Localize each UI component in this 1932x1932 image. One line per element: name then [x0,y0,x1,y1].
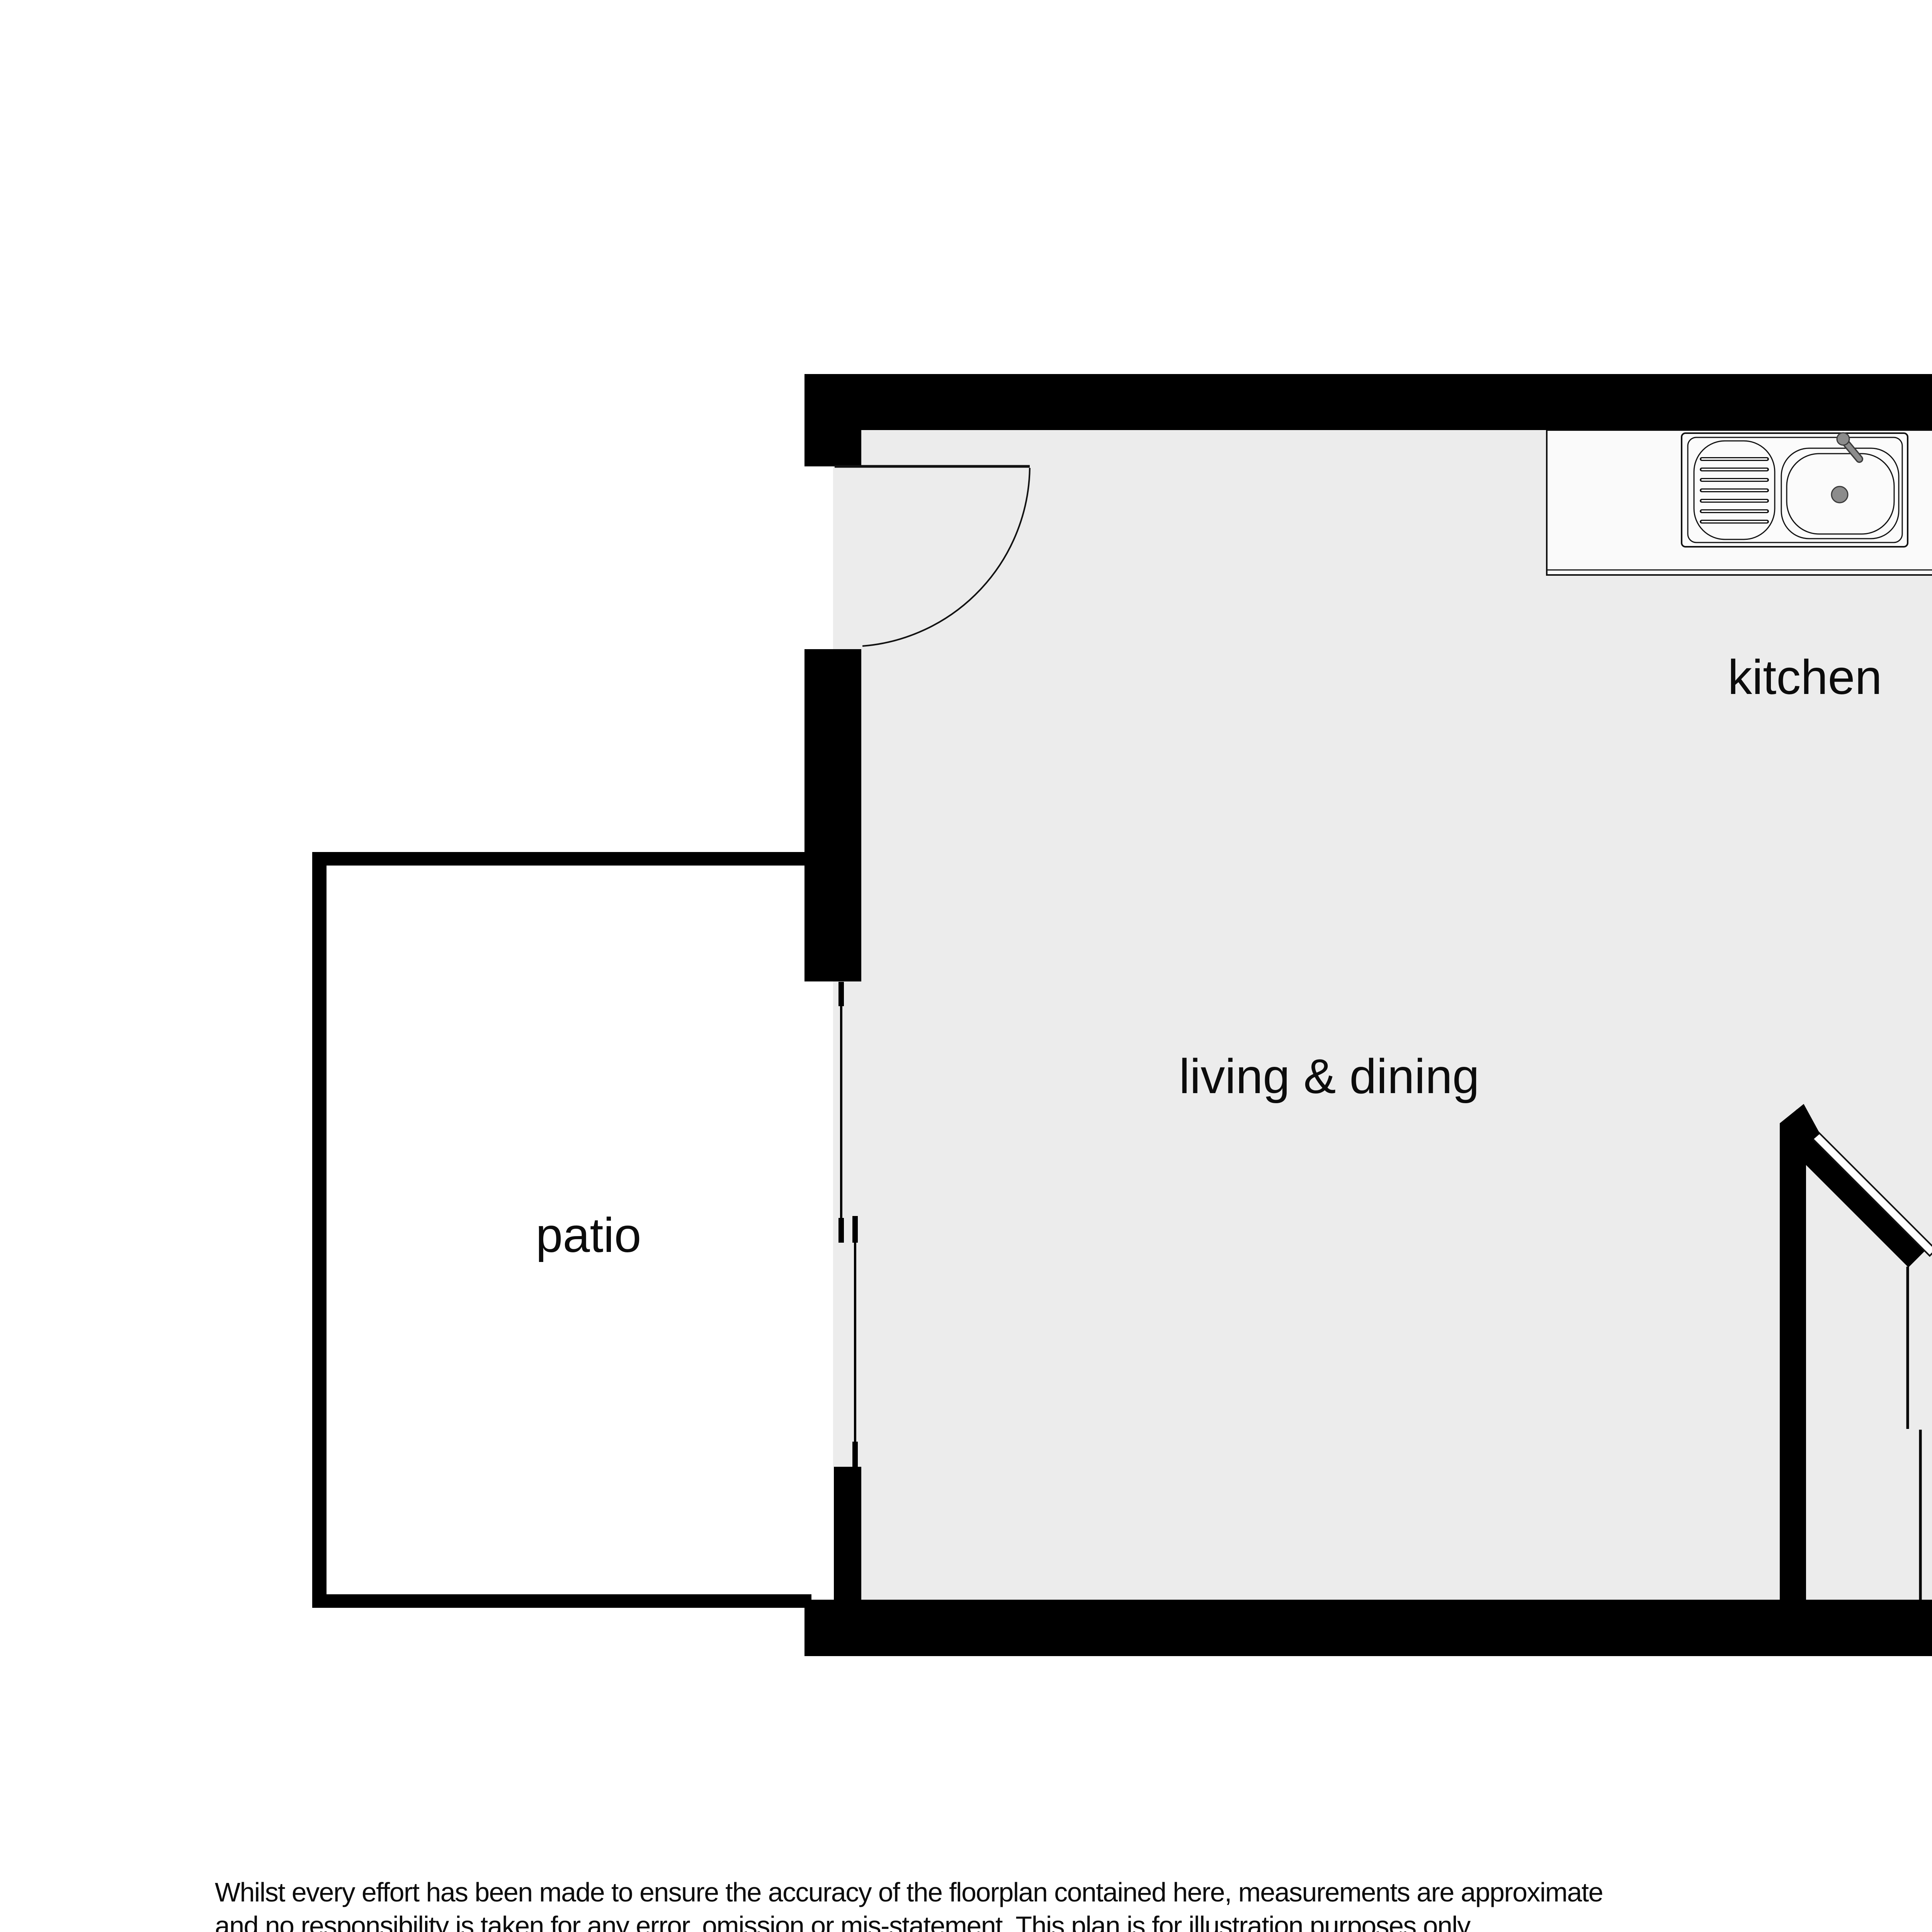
svg-text:patio: patio [536,1208,641,1262]
svg-text:kitchen: kitchen [1728,650,1882,704]
svg-text:living & dining: living & dining [1179,1049,1479,1104]
svg-text:and no responsibility is taken: and no responsibility is taken for any e… [215,1911,1475,1932]
svg-text:Whilst every effort has been m: Whilst every effort has been made to ens… [215,1877,1603,1907]
